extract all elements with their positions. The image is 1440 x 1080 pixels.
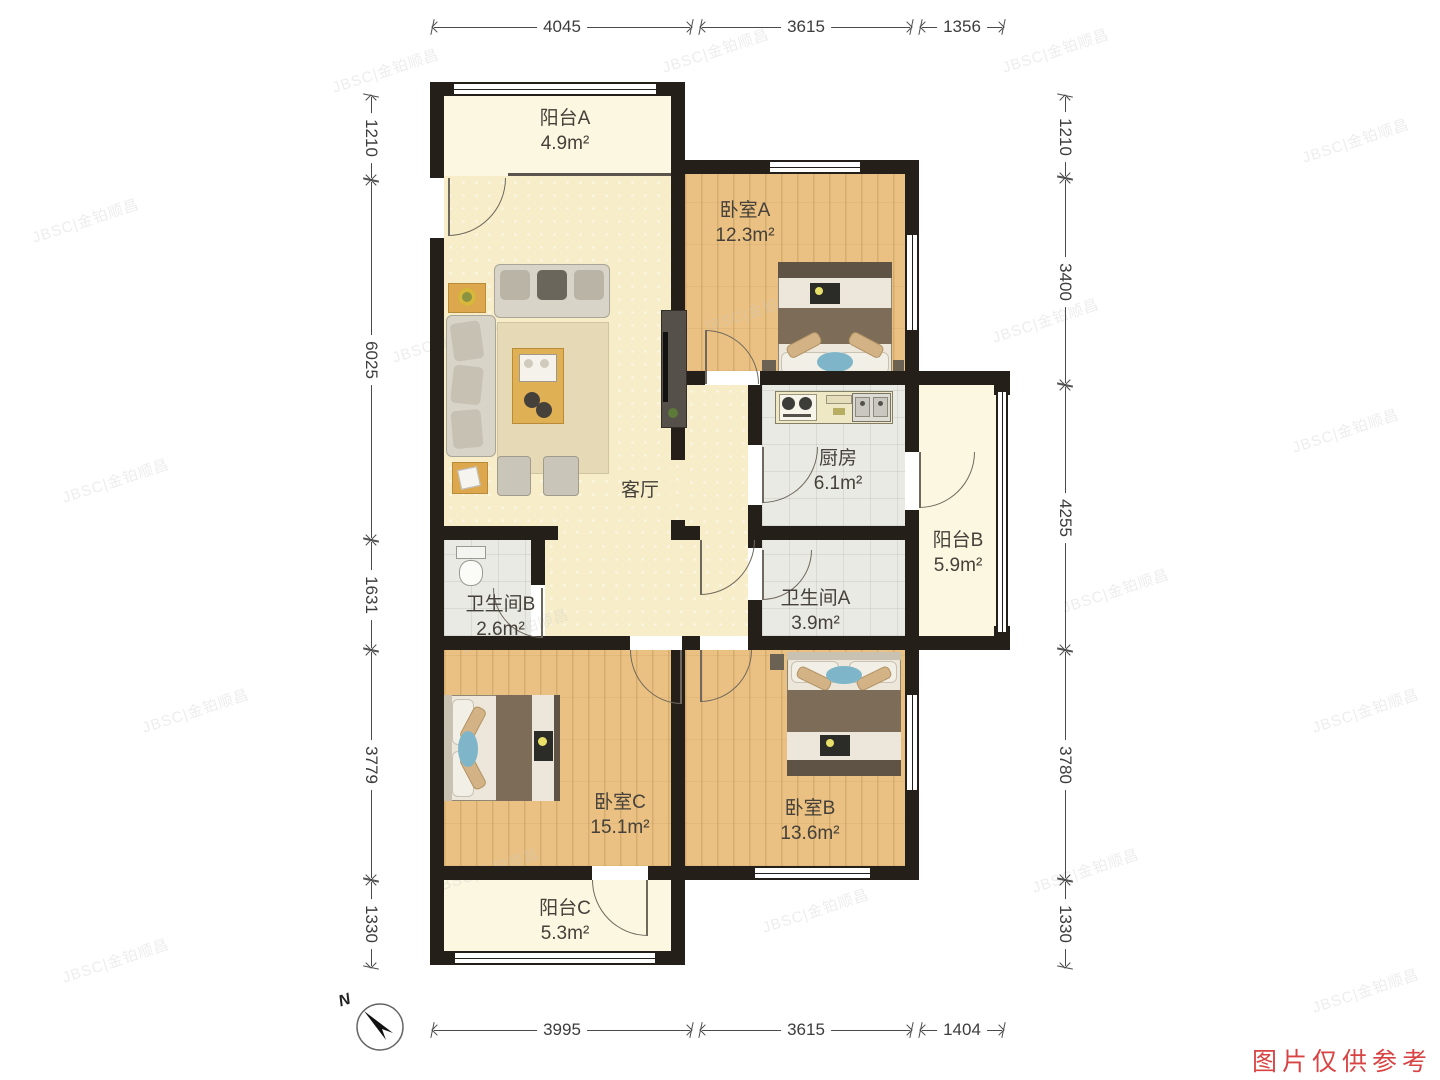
room-area: 4.9m² xyxy=(505,131,625,156)
dim-value: 1330 xyxy=(1055,899,1075,949)
wall xyxy=(430,82,444,178)
room-area: 2.6m² xyxy=(448,617,553,642)
sofa-cushion xyxy=(450,320,485,362)
label-bathroom-a: 卫生间A 3.9m² xyxy=(763,586,868,636)
dim-left-2: 6025 xyxy=(359,180,383,540)
watermark: JBSC|金铂顺昌 xyxy=(59,933,171,987)
dim-value: 3615 xyxy=(781,17,831,37)
wall xyxy=(752,636,919,650)
toilet-tank xyxy=(456,546,486,559)
room-area: 3.9m² xyxy=(763,611,868,636)
counter-item xyxy=(833,408,845,415)
dim-bottom-2: 3615 xyxy=(700,1018,912,1042)
wall xyxy=(905,160,919,235)
wall xyxy=(755,526,905,540)
wall xyxy=(685,526,700,540)
watermark: JBSC|金铂顺昌 xyxy=(1309,683,1421,737)
label-bedroom-b: 卧室B 13.6m² xyxy=(750,796,870,846)
watermark: JBSC|金铂顺昌 xyxy=(999,23,1111,77)
tea-cup xyxy=(540,359,549,368)
dim-left-5: 1330 xyxy=(359,880,383,968)
dim-value: 1210 xyxy=(361,113,381,163)
sofa-cushion xyxy=(500,270,530,300)
wall xyxy=(905,650,919,695)
dim-right-2: 3400 xyxy=(1053,178,1077,385)
bed-a-decor xyxy=(815,287,823,295)
room-name: 卫生间A xyxy=(763,586,868,611)
sink-basin xyxy=(855,397,870,417)
wall xyxy=(430,866,592,880)
room-area: 6.1m² xyxy=(788,471,888,496)
dim-value: 1330 xyxy=(361,899,381,949)
wall xyxy=(870,866,919,880)
watermark: JBSC|金铂顺昌 xyxy=(1299,113,1411,167)
sofa-cushion xyxy=(537,270,567,300)
tea-cup xyxy=(524,359,533,368)
dim-value: 1404 xyxy=(937,1020,987,1040)
sink-basin xyxy=(873,397,888,417)
dim-left-1: 1210 xyxy=(359,95,383,180)
bed-b-runner xyxy=(820,735,850,756)
bed-c-runner xyxy=(534,731,553,761)
dim-value: 6025 xyxy=(361,335,381,385)
room-name: 厨房 xyxy=(788,446,888,471)
room-area: 5.3m² xyxy=(505,921,625,946)
wall xyxy=(655,951,685,965)
ottoman xyxy=(497,456,531,496)
sofa-cushion xyxy=(450,365,484,406)
room-name: 卫生间B xyxy=(448,592,553,617)
hall-opening xyxy=(558,526,685,540)
dim-value: 4045 xyxy=(537,17,587,37)
bed-a-blanket xyxy=(778,308,892,344)
burner xyxy=(782,397,795,410)
wall xyxy=(685,371,705,385)
dim-left-3: 1631 xyxy=(359,540,383,650)
bed-a-foot xyxy=(778,262,892,278)
room-name: 阳台C xyxy=(505,896,625,921)
dim-value: 3615 xyxy=(781,1020,831,1040)
room-area: 13.6m² xyxy=(750,821,870,846)
stove-knobs xyxy=(783,414,811,417)
counter-item xyxy=(826,395,852,404)
wall xyxy=(531,540,545,585)
sofa-cushion xyxy=(450,409,483,449)
room-name: 卧室A xyxy=(675,198,815,223)
dim-right-1: 1210 xyxy=(1053,95,1077,178)
dim-value: 3779 xyxy=(361,740,381,790)
dim-value: 3995 xyxy=(537,1020,587,1040)
wall xyxy=(430,951,455,965)
foyer-strip xyxy=(685,385,748,526)
dim-value: 1631 xyxy=(361,570,381,620)
window xyxy=(905,235,919,330)
wall xyxy=(430,238,444,965)
toilet-bowl xyxy=(459,560,483,586)
wall xyxy=(430,526,558,540)
nightstand xyxy=(770,654,784,670)
wall xyxy=(905,385,919,452)
room-name: 阳台B xyxy=(908,528,1008,553)
room-name: 卧室C xyxy=(560,790,680,815)
room-area: 15.1m² xyxy=(560,815,680,840)
dim-value: 4255 xyxy=(1055,493,1075,543)
compass-rose-icon xyxy=(355,1002,405,1052)
wall xyxy=(671,82,685,174)
kettle xyxy=(536,402,552,418)
label-bathroom-b: 卫生间B 2.6m² xyxy=(448,592,553,642)
label-bedroom-c: 卧室C 15.1m² xyxy=(560,790,680,840)
room-name: 卧室B xyxy=(750,796,870,821)
book xyxy=(457,466,481,490)
ottoman xyxy=(543,456,579,496)
dim-value: 3400 xyxy=(1055,257,1075,307)
bed-c-headboard xyxy=(444,695,452,801)
plant xyxy=(458,288,476,306)
dim-top-3: 1356 xyxy=(920,15,1004,39)
watermark: JBSC|金铂顺昌 xyxy=(1289,403,1401,457)
tea-tray xyxy=(519,354,557,382)
compass-north-label: N xyxy=(337,991,354,1012)
dim-right-4: 3780 xyxy=(1053,650,1077,880)
reference-note: 图片仅供参考 xyxy=(1252,1042,1432,1078)
dim-value: 3780 xyxy=(1055,740,1075,790)
bed-b-blanket xyxy=(787,690,901,732)
dim-top-1: 4045 xyxy=(432,15,692,39)
wall xyxy=(748,385,762,445)
watermark: JBSC|金铂顺昌 xyxy=(59,453,171,507)
dim-value: 1356 xyxy=(937,17,987,37)
room-area: 5.9m² xyxy=(908,553,1008,578)
dim-right-5: 1330 xyxy=(1053,880,1077,968)
sofa-cushion xyxy=(574,270,604,300)
label-balcony-b: 阳台B 5.9m² xyxy=(908,528,1008,578)
label-balcony-a: 阳台A 4.9m² xyxy=(505,106,625,156)
watermark: JBSC|金铂顺昌 xyxy=(329,43,441,97)
window xyxy=(905,695,919,790)
wall xyxy=(648,866,755,880)
room-name: 客厅 xyxy=(598,478,682,503)
wall xyxy=(760,371,905,385)
balcony-divider xyxy=(508,173,671,176)
window xyxy=(755,866,870,880)
bed-c-foot xyxy=(554,695,560,801)
room-balcony-b xyxy=(919,385,996,636)
watermark: JBSC|金铂顺昌 xyxy=(989,293,1101,347)
dim-bottom-1: 3995 xyxy=(432,1018,692,1042)
watermark: JBSC|金铂顺昌 xyxy=(139,683,251,737)
dim-right-3: 4255 xyxy=(1053,385,1077,650)
watermark: JBSC|金铂顺昌 xyxy=(1309,963,1421,1017)
bed-c-decor xyxy=(538,737,547,746)
compass: N xyxy=(355,1002,405,1057)
watermark: JBSC|金铂顺昌 xyxy=(1029,843,1141,897)
watermark: JBSC|金铂顺昌 xyxy=(29,193,141,247)
window xyxy=(996,392,1008,632)
plant xyxy=(668,408,678,418)
round-pillow xyxy=(458,731,478,767)
bed-c-blanket xyxy=(496,695,532,801)
window xyxy=(455,951,655,965)
watermark: JBSC|金铂顺昌 xyxy=(759,883,871,937)
wall xyxy=(682,636,700,650)
entry-opening xyxy=(700,526,755,540)
window xyxy=(454,82,656,96)
dim-bottom-3: 1404 xyxy=(920,1018,1004,1042)
tv-screen xyxy=(663,332,668,402)
label-kitchen: 厨房 6.1m² xyxy=(788,446,888,496)
dim-top-2: 3615 xyxy=(700,15,912,39)
room-area: 12.3m² xyxy=(675,223,815,248)
dim-left-4: 3779 xyxy=(359,650,383,880)
bed-b-decor xyxy=(826,739,834,747)
round-pillow xyxy=(817,352,853,372)
burner xyxy=(799,397,812,410)
wall xyxy=(671,520,685,540)
bed-b-foot xyxy=(787,760,901,776)
label-bedroom-a: 卧室A 12.3m² xyxy=(675,198,815,248)
faucet xyxy=(878,401,883,406)
floorplan-canvas: JBSC|金铂顺昌 JBSC|金铂顺昌 JBSC|金铂顺昌 JBSC|金铂顺昌 … xyxy=(0,0,1440,1080)
faucet xyxy=(860,401,865,406)
dim-value: 1210 xyxy=(1055,112,1075,162)
label-balcony-c: 阳台C 5.3m² xyxy=(505,896,625,946)
bed-a-runner xyxy=(810,283,840,304)
window xyxy=(770,160,860,174)
label-living: 客厅 xyxy=(598,478,682,503)
wall xyxy=(685,160,770,174)
bed-b-headboard xyxy=(787,652,901,660)
round-pillow xyxy=(826,666,862,684)
room-name: 阳台A xyxy=(505,106,625,131)
